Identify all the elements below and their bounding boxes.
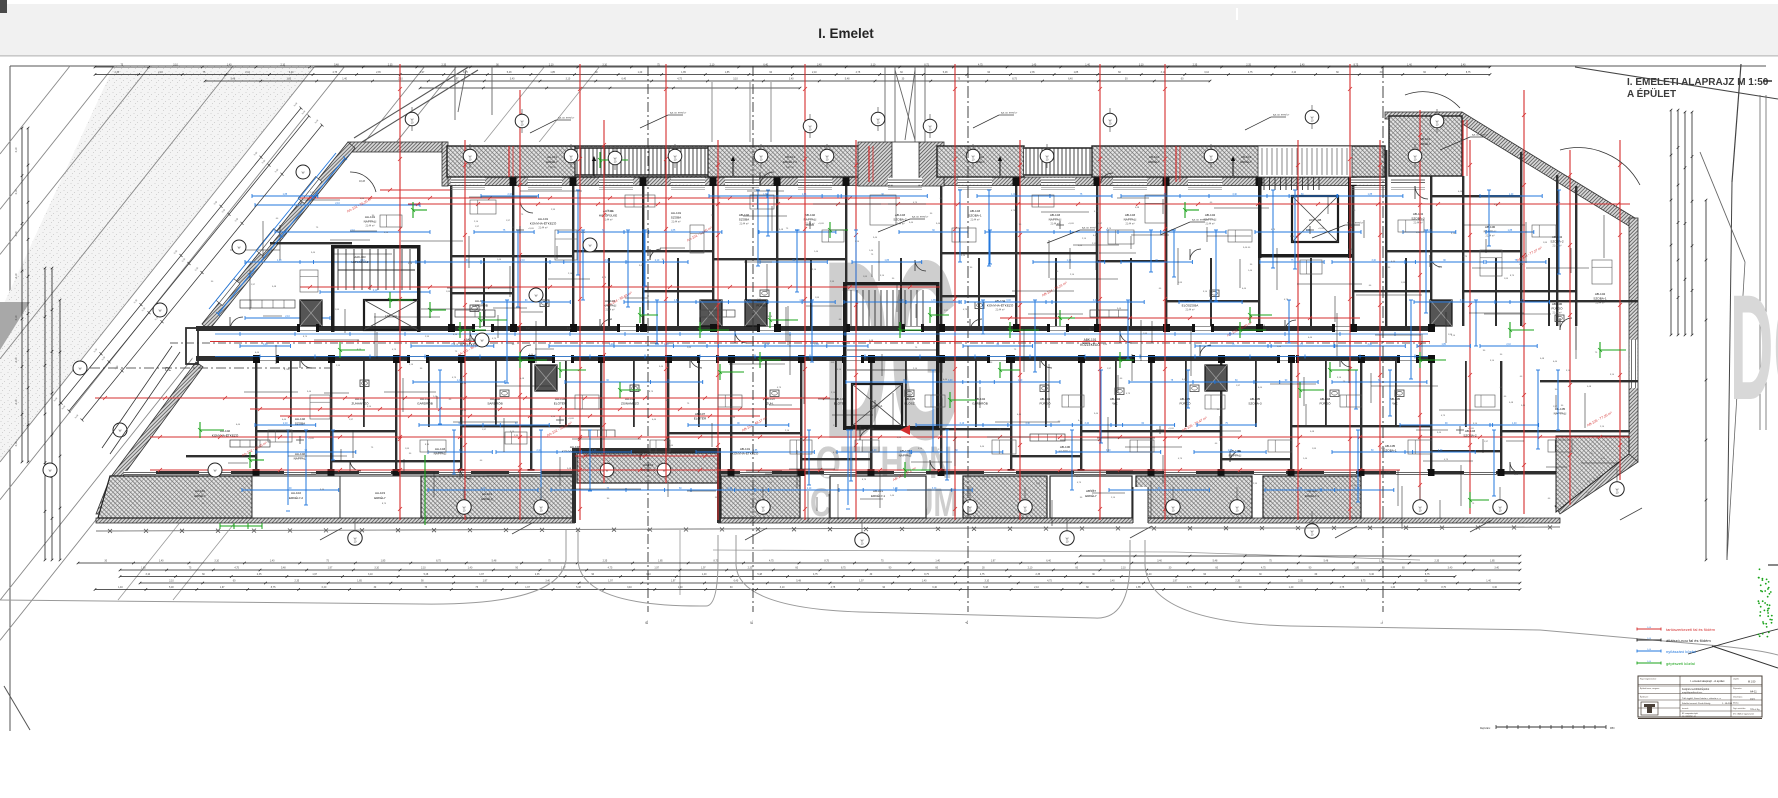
svg-text:1,40: 1,40 [1032, 64, 1037, 67]
svg-text:2,10: 2,10 [169, 580, 174, 583]
svg-text:W: W [589, 244, 592, 248]
svg-text:AB-105: AB-105 [1390, 397, 1401, 401]
svg-text:30: 30 [870, 573, 873, 576]
svg-text:90: 90 [987, 71, 990, 74]
svg-text:5,48: 5,48 [424, 573, 429, 576]
svg-text:megállapodások terv: megállapodások terv [1682, 691, 1703, 694]
svg-text:ERKÉLY-2: ERKÉLY-2 [289, 495, 303, 500]
svg-text:21,44 m²: 21,44 m² [1205, 223, 1214, 226]
svg-text:3,10: 3,10 [315, 119, 320, 124]
svg-text:21,44 m²: 21,44 m² [757, 309, 766, 312]
svg-text:I. Emelet: I. Emelet [818, 26, 874, 41]
svg-text:3,40: 3,40 [1025, 423, 1030, 425]
svg-text:AB-104: AB-104 [1595, 292, 1606, 296]
svg-text:1,85: 1,85 [802, 194, 807, 196]
svg-text:W: W [238, 246, 241, 250]
svg-text:AA-102: AA-102 [295, 452, 306, 456]
svg-text:sz. csoportja t. ut.: sz. csoportja t. ut. [1682, 715, 1697, 718]
svg-text:2,10: 2,10 [549, 64, 554, 67]
svg-text:30: 30 [1259, 573, 1262, 576]
svg-text:2,10: 2,10 [1506, 344, 1511, 346]
svg-text:1,40: 1,40 [1085, 64, 1090, 67]
svg-text:21,44 m²: 21,44 m² [1552, 312, 1561, 315]
svg-text:WC: WC [1112, 402, 1118, 406]
svg-text:60: 60 [276, 218, 279, 220]
svg-text:3,40: 3,40 [932, 488, 937, 490]
svg-text:2,10: 2,10 [398, 78, 403, 81]
svg-text:60: 60 [1239, 586, 1242, 589]
svg-text:I. EMELETI ALAPRAJZ M 1:50: I. EMELETI ALAPRAJZ M 1:50 [1627, 77, 1769, 88]
svg-text:Felelős tervező: Pavla Ká: Felelős tervező: Pavla Károly [1682, 702, 1711, 705]
svg-text:AB-103: AB-103 [1320, 397, 1331, 401]
svg-text:gépészeti közfal: gépészeti közfal [1666, 661, 1695, 666]
svg-text:5,48: 5,48 [281, 567, 286, 570]
svg-text:ZUHANYZÓ: ZUHANYZÓ [351, 401, 369, 406]
svg-text:NAPPALI: NAPPALI [1124, 218, 1137, 222]
svg-text:AB-103: AB-103 [1125, 213, 1136, 217]
svg-text:2,10: 2,10 [285, 316, 290, 318]
svg-text:AA-101: AA-101 [671, 211, 682, 215]
svg-text:SZOBA-3: SZOBA-3 [1248, 402, 1262, 406]
svg-text:nyílászáró közfal: nyílászáró közfal [1666, 649, 1696, 654]
svg-text:A.: A. [964, 620, 969, 624]
svg-text:ERKÉLY: ERKÉLY [194, 493, 206, 498]
svg-text:90: 90 [769, 71, 772, 74]
svg-text:1,40: 1,40 [481, 488, 486, 490]
svg-text:1,85: 1,85 [286, 78, 291, 81]
svg-text:GARDRÓB: GARDRÓB [417, 401, 433, 406]
svg-text:30: 30 [211, 281, 214, 283]
svg-text:1,40: 1,40 [592, 450, 597, 452]
svg-text:4,75: 4,75 [1340, 586, 1345, 589]
svg-text:3,40: 3,40 [510, 78, 515, 81]
svg-text:4,75: 4,75 [332, 71, 337, 74]
svg-text:4,75: 4,75 [677, 78, 682, 81]
svg-text:3,40: 3,40 [609, 344, 614, 346]
svg-text:AA-103: AA-103 [375, 491, 385, 495]
svg-text:8,75: 8,75 [271, 586, 276, 589]
svg-text:1,40: 1,40 [118, 586, 123, 589]
svg-text:5,48: 5,48 [796, 580, 801, 583]
svg-text:FÜRDŐ: FÜRDŐ [1040, 401, 1052, 406]
svg-text:1,97: 1,97 [483, 580, 488, 583]
svg-text:1,97: 1,97 [1173, 580, 1178, 583]
svg-text:tervező:: tervező: [1682, 707, 1689, 710]
svg-text:1,40: 1,40 [1390, 586, 1395, 589]
svg-text:1,85: 1,85 [1354, 567, 1359, 570]
svg-text:1,85: 1,85 [550, 71, 555, 74]
svg-text:60: 60 [1315, 573, 1318, 576]
svg-text:3,10: 3,10 [142, 307, 147, 312]
svg-text:AA-101 ERKÉLY: AA-101 ERKÉLY [1082, 227, 1099, 230]
svg-text:60: 60 [1118, 71, 1121, 74]
svg-text:21,44 m²: 21,44 m² [1125, 223, 1134, 226]
svg-text:A ÉPÜLET: A ÉPÜLET [1627, 87, 1676, 100]
svg-text:1 : 48-4568: 1 : 48-4568 [1722, 703, 1733, 705]
svg-text:AA-101 ERKÉLY: AA-101 ERKÉLY [1347, 222, 1364, 225]
svg-text:4,75: 4,75 [1047, 580, 1052, 583]
svg-text:5,48: 5,48 [334, 64, 339, 67]
svg-text:KONYHA-ÉTKEZŐ: KONYHA-ÉTKEZŐ [987, 303, 1014, 308]
svg-text:60: 60 [1402, 567, 1405, 570]
svg-text:21,44 m²: 21,44 m² [671, 221, 680, 224]
svg-text:+3,03: +3,03 [868, 428, 874, 430]
svg-text:3,40: 3,40 [1461, 64, 1466, 67]
svg-text:1,40: 1,40 [702, 573, 707, 576]
svg-text:3,10: 3,10 [275, 168, 280, 173]
svg-text:1,97: 1,97 [328, 567, 333, 570]
svg-text:3,10: 3,10 [1291, 71, 1296, 74]
svg-text:3,10: 3,10 [174, 250, 179, 255]
svg-text:AA-101 ERKÉLY: AA-101 ERKÉLY [1273, 114, 1290, 117]
svg-text:AB-102: AB-102 [805, 213, 816, 217]
svg-text:W: W [119, 429, 122, 433]
svg-text:DG: DG [1730, 265, 1778, 432]
svg-text:AB-104: AB-104 [1110, 397, 1121, 401]
svg-text:30: 30 [104, 560, 107, 563]
svg-text:AA-101 ERKÉLY: AA-101 ERKÉLY [670, 112, 687, 115]
svg-text:AB-105: AB-105 [1385, 444, 1396, 448]
svg-text:2,35: 2,35 [1193, 64, 1198, 67]
svg-text:3,10: 3,10 [15, 231, 18, 236]
svg-text:1,85: 1,85 [681, 71, 686, 74]
svg-text:3,40: 3,40 [899, 300, 904, 302]
svg-text:1,85: 1,85 [799, 300, 804, 302]
svg-text:3,40: 3,40 [604, 260, 609, 262]
svg-text:3,40: 3,40 [948, 380, 953, 382]
svg-text:3,10: 3,10 [368, 573, 373, 576]
svg-text:AB-104: AB-104 [1413, 212, 1424, 216]
svg-text:6,40: 6,40 [322, 586, 327, 589]
svg-text:ERKÉLY-1: ERKÉLY-1 [1305, 493, 1319, 498]
svg-text:1,97: 1,97 [701, 567, 706, 570]
svg-text:60: 60 [1423, 71, 1426, 74]
svg-text:5,48: 5,48 [1324, 560, 1329, 563]
svg-text:Digit. minősítés:: Digit. minősítés: [1733, 707, 1746, 710]
svg-text:1,85: 1,85 [141, 567, 146, 570]
svg-text:2,10: 2,10 [1121, 567, 1126, 570]
svg-text:30: 30 [1169, 567, 1172, 570]
svg-text:8,75: 8,75 [436, 560, 441, 563]
svg-text:21,44 m²: 21,44 m² [995, 309, 1004, 312]
svg-text:2,35: 2,35 [441, 64, 446, 67]
svg-text:AA-103: AA-103 [435, 447, 446, 451]
svg-text:Munka:: Munka: [1733, 703, 1739, 705]
svg-text:60: 60 [1181, 78, 1184, 81]
svg-text:2,10: 2,10 [710, 64, 715, 67]
svg-text:3,10: 3,10 [222, 208, 227, 213]
svg-text:2,35: 2,35 [114, 71, 119, 74]
svg-text:4,75: 4,75 [1248, 71, 1253, 74]
svg-text:1,85: 1,85 [814, 344, 819, 346]
svg-text:2,10: 2,10 [747, 300, 752, 302]
svg-text:5,48: 5,48 [983, 586, 988, 589]
svg-text:1,40: 1,40 [1289, 586, 1294, 589]
svg-text:8,75: 8,75 [1012, 78, 1017, 81]
svg-text:75: 75 [424, 586, 427, 589]
svg-text:+3,03: +3,03 [1468, 428, 1474, 430]
svg-text:60: 60 [1215, 567, 1218, 570]
svg-text:6,40: 6,40 [932, 586, 937, 589]
svg-text:W: W [535, 294, 538, 298]
svg-text:TRV d. Ng: TRV d. Ng [1750, 709, 1759, 711]
svg-text:6,40: 6,40 [1068, 78, 1073, 81]
svg-text:60: 60 [1425, 580, 1428, 583]
svg-text:1,85: 1,85 [753, 450, 758, 452]
svg-text:8,75: 8,75 [841, 567, 846, 570]
svg-text:LIFT - AA: LIFT - AA [385, 314, 397, 318]
svg-text:3,10: 3,10 [262, 159, 267, 164]
svg-text:LIFT - A: LIFT - A [872, 404, 883, 408]
svg-text:1,40: 1,40 [1486, 580, 1491, 583]
svg-text:2,10: 2,10 [280, 64, 285, 67]
svg-text:FÜRDŐ: FÜRDŐ [1180, 401, 1192, 406]
svg-text:6,40: 6,40 [734, 580, 739, 583]
svg-text:2,10: 2,10 [1028, 567, 1033, 570]
svg-text:1,40: 1,40 [342, 78, 347, 81]
svg-text:1,40: 1,40 [678, 586, 683, 589]
svg-text:3,10: 3,10 [1139, 64, 1144, 67]
svg-text:2,35: 2,35 [1030, 71, 1035, 74]
svg-text:3,10: 3,10 [62, 405, 67, 410]
svg-text:3,40: 3,40 [1300, 64, 1305, 67]
svg-text:3,10: 3,10 [15, 441, 18, 446]
svg-text:Tóth ügyfél, Szent István u. s: Tóth ügyfél, Szent István u. sétszáz s. … [1682, 697, 1722, 700]
svg-text:ERKÉLY-1: ERKÉLY-1 [871, 493, 885, 498]
svg-text:5,48: 5,48 [1213, 560, 1218, 563]
svg-text:ERKÉLY: ERKÉLY [374, 495, 386, 500]
svg-text:75: 75 [548, 560, 551, 563]
svg-text:2,10: 2,10 [1034, 586, 1039, 589]
svg-text:AB-101: AB-101 [785, 155, 795, 159]
svg-text:AA-101: AA-101 [538, 217, 549, 221]
svg-text:2,10: 2,10 [373, 290, 378, 292]
svg-text:2,35: 2,35 [603, 560, 608, 563]
svg-text:ERKÉLY: ERKÉLY [1085, 493, 1097, 498]
svg-text:3,40: 3,40 [1157, 560, 1162, 563]
svg-text:1,97: 1,97 [525, 586, 530, 589]
svg-text:90: 90 [882, 586, 885, 589]
svg-text:tartószerkezeti fal és födém: tartószerkezeti fal és födém [1666, 627, 1716, 632]
svg-text:átlátszó-nou fal és födém: átlátszó-nou fal és födém [1666, 638, 1711, 643]
svg-text:AA-103: AA-103 [570, 445, 581, 449]
svg-text:3,40: 3,40 [1492, 586, 1497, 589]
svg-text:60: 60 [202, 573, 205, 576]
svg-text:Rajzszám:: Rajzszám: [1733, 688, 1742, 690]
svg-text:4,75: 4,75 [856, 71, 861, 74]
svg-text:3,10: 3,10 [374, 567, 379, 570]
svg-text:M50: M50 [1610, 728, 1615, 730]
svg-text:3,10: 3,10 [115, 365, 120, 370]
svg-text:21,44 m²: 21,44 m² [1413, 222, 1422, 225]
svg-text:3,40: 3,40 [627, 586, 632, 589]
svg-text:2,10: 2,10 [245, 71, 250, 74]
svg-text:3,10: 3,10 [195, 267, 200, 272]
svg-text:AB-105: AB-105 [1250, 397, 1261, 401]
svg-text:6,40: 6,40 [763, 64, 768, 67]
svg-text:1,40: 1,40 [277, 260, 282, 262]
svg-text:21,44 m²: 21,44 m² [365, 225, 374, 228]
svg-text:60: 60 [1086, 586, 1089, 589]
svg-text:Építtető neve, megnev.:: Építtető neve, megnev.: [1640, 687, 1660, 690]
svg-text:ELŐTÉR: ELŐTÉR [554, 401, 567, 406]
svg-text:1,85: 1,85 [931, 300, 936, 302]
svg-text:90: 90 [889, 567, 892, 570]
svg-text:+3,03: +3,03 [528, 228, 534, 230]
svg-text:3,10: 3,10 [15, 189, 18, 194]
svg-text:3,40: 3,40 [817, 64, 822, 67]
svg-text:1,40: 1,40 [638, 71, 643, 74]
svg-text:2,35: 2,35 [257, 573, 262, 576]
svg-text:5,48: 5,48 [576, 586, 581, 589]
svg-text:3,40: 3,40 [545, 580, 550, 583]
svg-text:3,40: 3,40 [1110, 580, 1115, 583]
svg-text:2,10: 2,10 [960, 423, 965, 425]
svg-text:WC: WC [1392, 402, 1398, 406]
svg-text:75: 75 [189, 567, 192, 570]
svg-text:NAPPALI: NAPPALI [1049, 218, 1062, 222]
svg-text:2,10: 2,10 [283, 423, 288, 425]
svg-text:30: 30 [1125, 78, 1128, 81]
svg-text:3,10: 3,10 [15, 357, 18, 362]
svg-text:21,44 m²: 21,44 m² [739, 223, 748, 226]
svg-text:3,40: 3,40 [1093, 300, 1098, 302]
svg-text:1,85: 1,85 [1441, 344, 1446, 346]
svg-text:ERKÉLY-2: ERKÉLY-2 [783, 159, 797, 164]
svg-text:LIFT - AB: LIFT - AB [1309, 218, 1322, 222]
svg-text:90: 90 [421, 580, 424, 583]
svg-text:1,97: 1,97 [671, 580, 676, 583]
svg-text:3,10: 3,10 [214, 560, 219, 563]
svg-text:3,10: 3,10 [182, 258, 187, 263]
svg-text:2,10: 2,10 [158, 71, 163, 74]
svg-text:AAK-103: AAK-103 [354, 255, 366, 259]
svg-text:Dátum/psz.:: Dátum/psz.: [1733, 696, 1744, 699]
svg-text:AB-103: AB-103 [1050, 213, 1061, 217]
svg-text:3,10: 3,10 [1204, 71, 1209, 74]
svg-text:3,40: 3,40 [1106, 450, 1111, 452]
svg-text:AB-104: AB-104 [1205, 213, 1216, 217]
svg-text:M 1:50: M 1:50 [1748, 681, 1756, 684]
svg-text:KÖZLEKEDŐ: KÖZLEKEDŐ [1080, 342, 1100, 347]
svg-text:60: 60 [233, 580, 236, 583]
svg-text:2,35: 2,35 [748, 567, 753, 570]
svg-text:W: W [302, 171, 305, 175]
svg-text:SZOBA: SZOBA [671, 216, 682, 220]
svg-text:60: 60 [1336, 71, 1339, 74]
svg-text:3,40: 3,40 [1371, 260, 1376, 262]
svg-text:90: 90 [1309, 567, 1312, 570]
svg-text:1,97: 1,97 [312, 573, 317, 576]
svg-text:2,10: 2,10 [807, 488, 812, 490]
svg-text:3,10: 3,10 [94, 348, 99, 353]
svg-text:4,75: 4,75 [1187, 586, 1192, 589]
svg-text:3,10: 3,10 [984, 580, 989, 583]
svg-text:6,40: 6,40 [1046, 560, 1051, 563]
svg-text:2,35: 2,35 [388, 64, 393, 67]
svg-text:5,48: 5,48 [169, 586, 174, 589]
svg-text:90: 90 [515, 567, 518, 570]
svg-text:8,75: 8,75 [1361, 580, 1366, 583]
svg-text:1,40: 1,40 [1018, 380, 1023, 382]
svg-text:W: W [49, 469, 52, 473]
svg-text:60: 60 [1075, 567, 1078, 570]
svg-text:1,40: 1,40 [664, 344, 669, 346]
svg-text:3,10: 3,10 [15, 273, 18, 278]
svg-text:1,97: 1,97 [991, 560, 996, 563]
svg-text:21,44 m²: 21,44 m² [1595, 302, 1604, 305]
svg-text:4,75: 4,75 [1261, 567, 1266, 570]
svg-text:8,75: 8,75 [1354, 64, 1359, 67]
svg-text:1,85: 1,85 [381, 560, 386, 563]
svg-text:3,10: 3,10 [15, 315, 18, 320]
svg-text:ELŐTÉR: ELŐTÉR [834, 401, 847, 406]
svg-text:1,85: 1,85 [283, 194, 288, 196]
svg-text:1,40: 1,40 [922, 580, 927, 583]
svg-text:30: 30 [730, 586, 733, 589]
svg-text:30: 30 [595, 71, 598, 74]
svg-text:1,85: 1,85 [671, 230, 676, 232]
svg-text:90: 90 [591, 573, 594, 576]
svg-text:1,85: 1,85 [658, 560, 663, 563]
svg-text:3,10: 3,10 [75, 414, 80, 419]
svg-text:W: W [481, 339, 484, 343]
svg-text:5,48: 5,48 [757, 573, 762, 576]
svg-text:FÜRDŐ: FÜRDŐ [757, 303, 769, 308]
svg-text:1,40: 1,40 [1509, 194, 1514, 196]
svg-text:AB-106: AB-106 [1552, 302, 1563, 306]
svg-text:1,85: 1,85 [1136, 586, 1141, 589]
svg-text:3,10: 3,10 [780, 586, 785, 589]
svg-text:1,85: 1,85 [1074, 71, 1079, 74]
svg-text:1,97: 1,97 [420, 71, 425, 74]
svg-text:2021: 2021 [1750, 699, 1756, 701]
svg-text:3,40: 3,40 [1232, 194, 1237, 196]
svg-text:5,48: 5,48 [492, 560, 497, 563]
svg-text:KONYHA-ÉTKEZŐ: KONYHA-ÉTKEZŐ [530, 221, 557, 226]
svg-text:1,85: 1,85 [1490, 560, 1495, 563]
svg-text:2,35: 2,35 [1246, 64, 1251, 67]
svg-text:30: 30 [1092, 573, 1095, 576]
svg-text:75: 75 [881, 560, 884, 563]
svg-text:+3,03: +3,03 [818, 223, 824, 225]
svg-text:ZSINAMEZŐ: ZSINAMEZŐ [621, 401, 640, 406]
svg-text:2,35: 2,35 [376, 71, 381, 74]
svg-text:1,40: 1,40 [1067, 260, 1072, 262]
svg-text:Rajzszám:: Rajzszám: [1480, 728, 1491, 730]
svg-text:30: 30 [1380, 71, 1383, 74]
svg-text:1,97: 1,97 [1379, 560, 1384, 563]
svg-text:21,44 m²: 21,44 m² [603, 219, 612, 222]
svg-text:AB-106: AB-106 [1060, 445, 1071, 449]
svg-text:2,10: 2,10 [812, 71, 817, 74]
svg-text:2,10: 2,10 [421, 567, 426, 570]
svg-text:NAPPALI: NAPPALI [1229, 454, 1242, 458]
svg-text:AB-102: AB-102 [739, 213, 750, 217]
svg-text:21,44 m²: 21,44 m² [605, 309, 614, 312]
svg-text:W: W [79, 367, 82, 371]
svg-text:75: 75 [1103, 560, 1106, 563]
svg-text:3,10: 3,10 [646, 573, 651, 576]
svg-text:60: 60 [935, 567, 938, 570]
svg-text:1,97: 1,97 [859, 580, 864, 583]
svg-text:1,40: 1,40 [457, 380, 462, 382]
svg-text:Építészet:: Építészet: [1640, 696, 1649, 699]
svg-text:2,35: 2,35 [1035, 573, 1040, 576]
svg-text:1,40: 1,40 [1407, 64, 1412, 67]
svg-text:3,40: 3,40 [1494, 567, 1499, 570]
svg-text:8,75: 8,75 [1425, 573, 1430, 576]
